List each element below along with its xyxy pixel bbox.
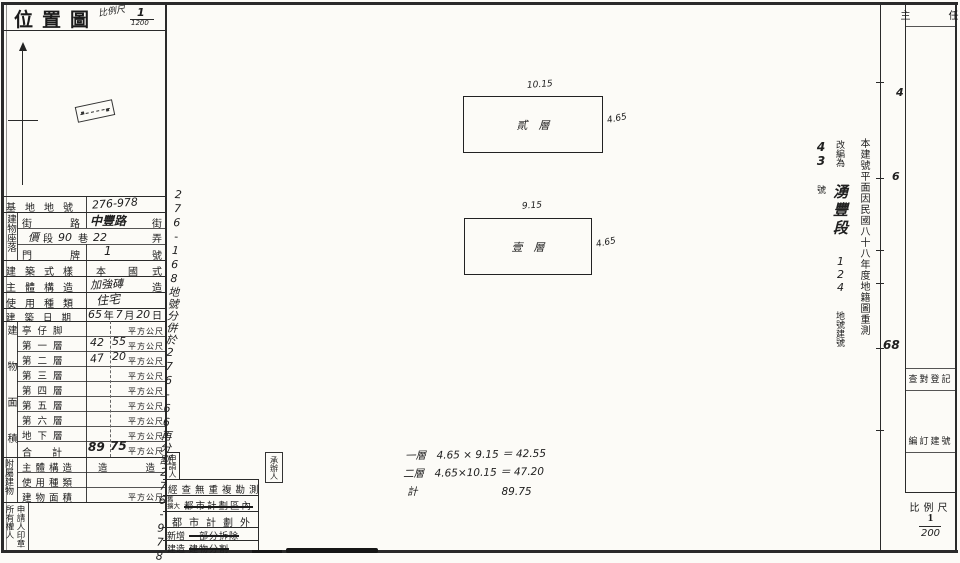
lane-fill-row: 價 段 90 巷 22 弄 [28,229,162,245]
door-plate-value: 1 [104,244,112,258]
stamp-dot [81,111,85,115]
stamp-building-number: 43 [814,140,828,168]
building-outline-floor1: 壹 層 [464,218,592,275]
table-vline [28,502,29,551]
build-date-value: 65 年 7 月 20 日 [88,307,162,322]
bottom-scale-numerator: 1 [905,512,956,524]
building-split-struck: 建物分割 [189,542,229,555]
floor-5-label: 第五層 [22,398,69,412]
date-month-unit: 月 [124,307,134,322]
seal-cell: 申請人印章 所有權人 [4,505,26,551]
coordinate-cross-line [8,120,38,121]
resurvey-stamp-left-column: 改編為 湧豐段 124 地號建號 43 號 [812,140,851,375]
floor1-side-dimension: 4.65 [595,236,617,250]
table-line [2,196,165,197]
bottom-scale-denominator: 200 [905,528,956,539]
bottom-scale-fraction-bar [919,526,941,527]
ink-smudge [286,548,378,553]
date-year-unit: 年 [104,307,114,322]
annex-structure-label: 主體構造 [22,460,76,474]
floor-basement-label: 地下層 [22,428,69,442]
fold-strip-line [880,2,881,551]
date-month-value: 7 [116,308,123,321]
chief-header: 主 任 [905,7,956,22]
right-panel-line [905,452,956,453]
lane-prefix-value: 價 [28,229,39,245]
fold-tick [876,430,884,431]
table-vline-dashed [110,321,111,457]
door-plate-label: 門 牌 [22,247,94,262]
right-panel-border [905,2,906,492]
seal-owner-label: 所有權人 [5,505,15,539]
north-arrow-line [22,50,23,185]
table-vline [17,212,18,260]
floor1-top-dimension: 9.15 [522,200,543,211]
floor-6-label: 第六層 [22,413,69,427]
parcel-note-handwriting: 276-168地號分併於276-66再分割276-978地號 [158,188,186,424]
stamp-section-name: 湧豐段 [831,184,849,238]
site-number-label: 基地地號 [6,199,82,214]
floor-2-label: 第二層 [22,353,69,367]
applicant-box-label: 申請人 [167,454,178,479]
floor-arcade-unit: 平方公尺 [128,326,164,337]
right-panel-line [905,390,956,391]
stamp-dot [106,108,110,112]
floor2-top-dimension: 10.15 [527,79,553,91]
handler-box: 承辦人 [265,452,283,483]
site-location-stamp [75,99,115,123]
floor-1-v2: 55 [112,335,126,348]
applicant-box-top [165,452,179,453]
building-style-unit: 式 [152,263,162,278]
floor2-side-dimension: 4.65 [606,112,628,126]
old-label: 舊 [167,496,180,503]
street-unit: 街 [152,215,162,230]
seal-applicant-label: 申請人印章 [16,505,26,548]
total-v1: 89 [88,440,105,454]
fold-mark-2: 6 [892,170,900,183]
floor-1-unit: 平方公尺 [128,341,164,352]
alley-char: 弄 [152,230,162,245]
expanded-label: 擴大 [167,503,180,510]
floor-3-unit: 平方公尺 [128,371,164,382]
border-top [2,2,958,5]
calc-line-floor2: 二層 4.65×10.15 ＝ 47.20 [403,464,544,481]
total-label: 合 計 [22,444,67,459]
floor-4-label: 第四層 [22,383,69,397]
floor-3-label: 第三層 [22,368,69,382]
date-day-value: 20 [136,308,150,321]
stamp-parcel-label: 地號建號 [835,311,845,347]
date-year-value: 65 [88,308,102,321]
new-addition-label: 新增 [167,529,185,542]
right-panel-line [905,492,956,493]
scale-numerator: 1 [137,6,145,19]
table-vline [86,244,87,502]
floor-2-v2: 20 [112,350,126,363]
usage-type-label: 使用種類 [6,295,82,310]
fold-tick [876,178,884,179]
floor-arcade-label: 亭仔脚 [22,323,69,337]
handler-box-label: 承辦人 [266,453,282,482]
page-title: 位置圖 [14,5,98,32]
no-duplicate-survey-text: 經查無重複勘測 [168,482,263,496]
stamp-building-label: 號 [816,185,826,194]
scanned-location-map-sheet: 位置圖 比例尺 1 1200 基地地號 276-978 建物座落 街 路 中豐路… [0,0,960,563]
stamp-prefix: 改編為 [835,140,845,167]
right-panel-line [905,368,956,369]
border-bottom [2,550,958,553]
building-style-label: 建築式樣 [6,263,82,278]
main-structure-label: 主體構造 [6,279,82,294]
floor2-inner-label: 貳 層 [464,97,602,152]
scale-label-hand: 比例尺 [97,2,126,19]
location-group-label: 建物座落 [3,214,17,260]
annex-area-label: 建物面積 [22,490,76,504]
fold-tick [876,283,884,284]
floor-1-v1: 42 [90,336,104,349]
calc-line-floor1: 一層 4.65 × 9.15 ＝ 42.55 [405,446,546,463]
annex-usage-label: 使用種類 [22,475,76,489]
applicant-box-right [179,452,180,479]
street-value: 中豐路 [90,212,126,229]
building-outline-floor2: 貳 層 [463,96,603,153]
fold-tick [876,250,884,251]
check-table-line [163,479,258,480]
urban-plan-inside-struck: 都市計劃區內 [184,498,253,512]
total-v2: 75 [110,439,127,453]
floor-1-label: 第一層 [22,338,69,352]
urban-plan-outside-text: 都市計劃外 [172,514,257,529]
build-date-label: 建築日期 [6,310,80,324]
lane-number: 90 [58,231,72,244]
annex-structure-value: 造 造 [98,460,155,474]
right-panel-line [905,26,956,27]
fold-mark-1: 4 [896,86,904,99]
north-arrow-icon [19,42,27,51]
date-day-unit: 日 [152,307,162,322]
segment-char: 段 [43,230,53,245]
calc-line-total: 計 89.75 [407,484,532,499]
resurvey-stamp-right-column: 本建號平面因民國八十八年度地籍圖重測 [856,138,871,368]
area-group-label: 建物面積 [3,325,18,455]
border-right [955,2,957,553]
main-structure-unit: 造 [152,279,162,294]
stamp-parcel-number: 124 [834,255,847,294]
street-label: 街 路 [22,215,94,230]
annex-group-label: 附屬建物 [3,459,16,501]
floor-2-v1: 47 [89,351,104,365]
construction-label: 建造 [167,542,185,555]
fold-mark-3: 68 [883,338,900,352]
floor-2-unit: 平方公尺 [128,356,164,367]
door-plate-unit: 號 [152,247,162,262]
review-registration-label: 查對登記 [905,372,956,385]
ink-smudge [252,550,282,553]
scale-denominator: 1200 [131,19,149,27]
lane-char: 巷 [78,230,88,245]
old-expanded-labels: 舊 擴大 [167,496,180,510]
site-number-value: 276-978 [92,195,139,211]
partial-demolition-struck: 一部分拆除 [189,529,239,542]
alley-number: 22 [93,231,107,244]
floor1-inner-label: 壹 層 [465,219,591,274]
fold-tick [876,82,884,83]
assign-building-number-label: 編訂建號 [905,434,956,447]
